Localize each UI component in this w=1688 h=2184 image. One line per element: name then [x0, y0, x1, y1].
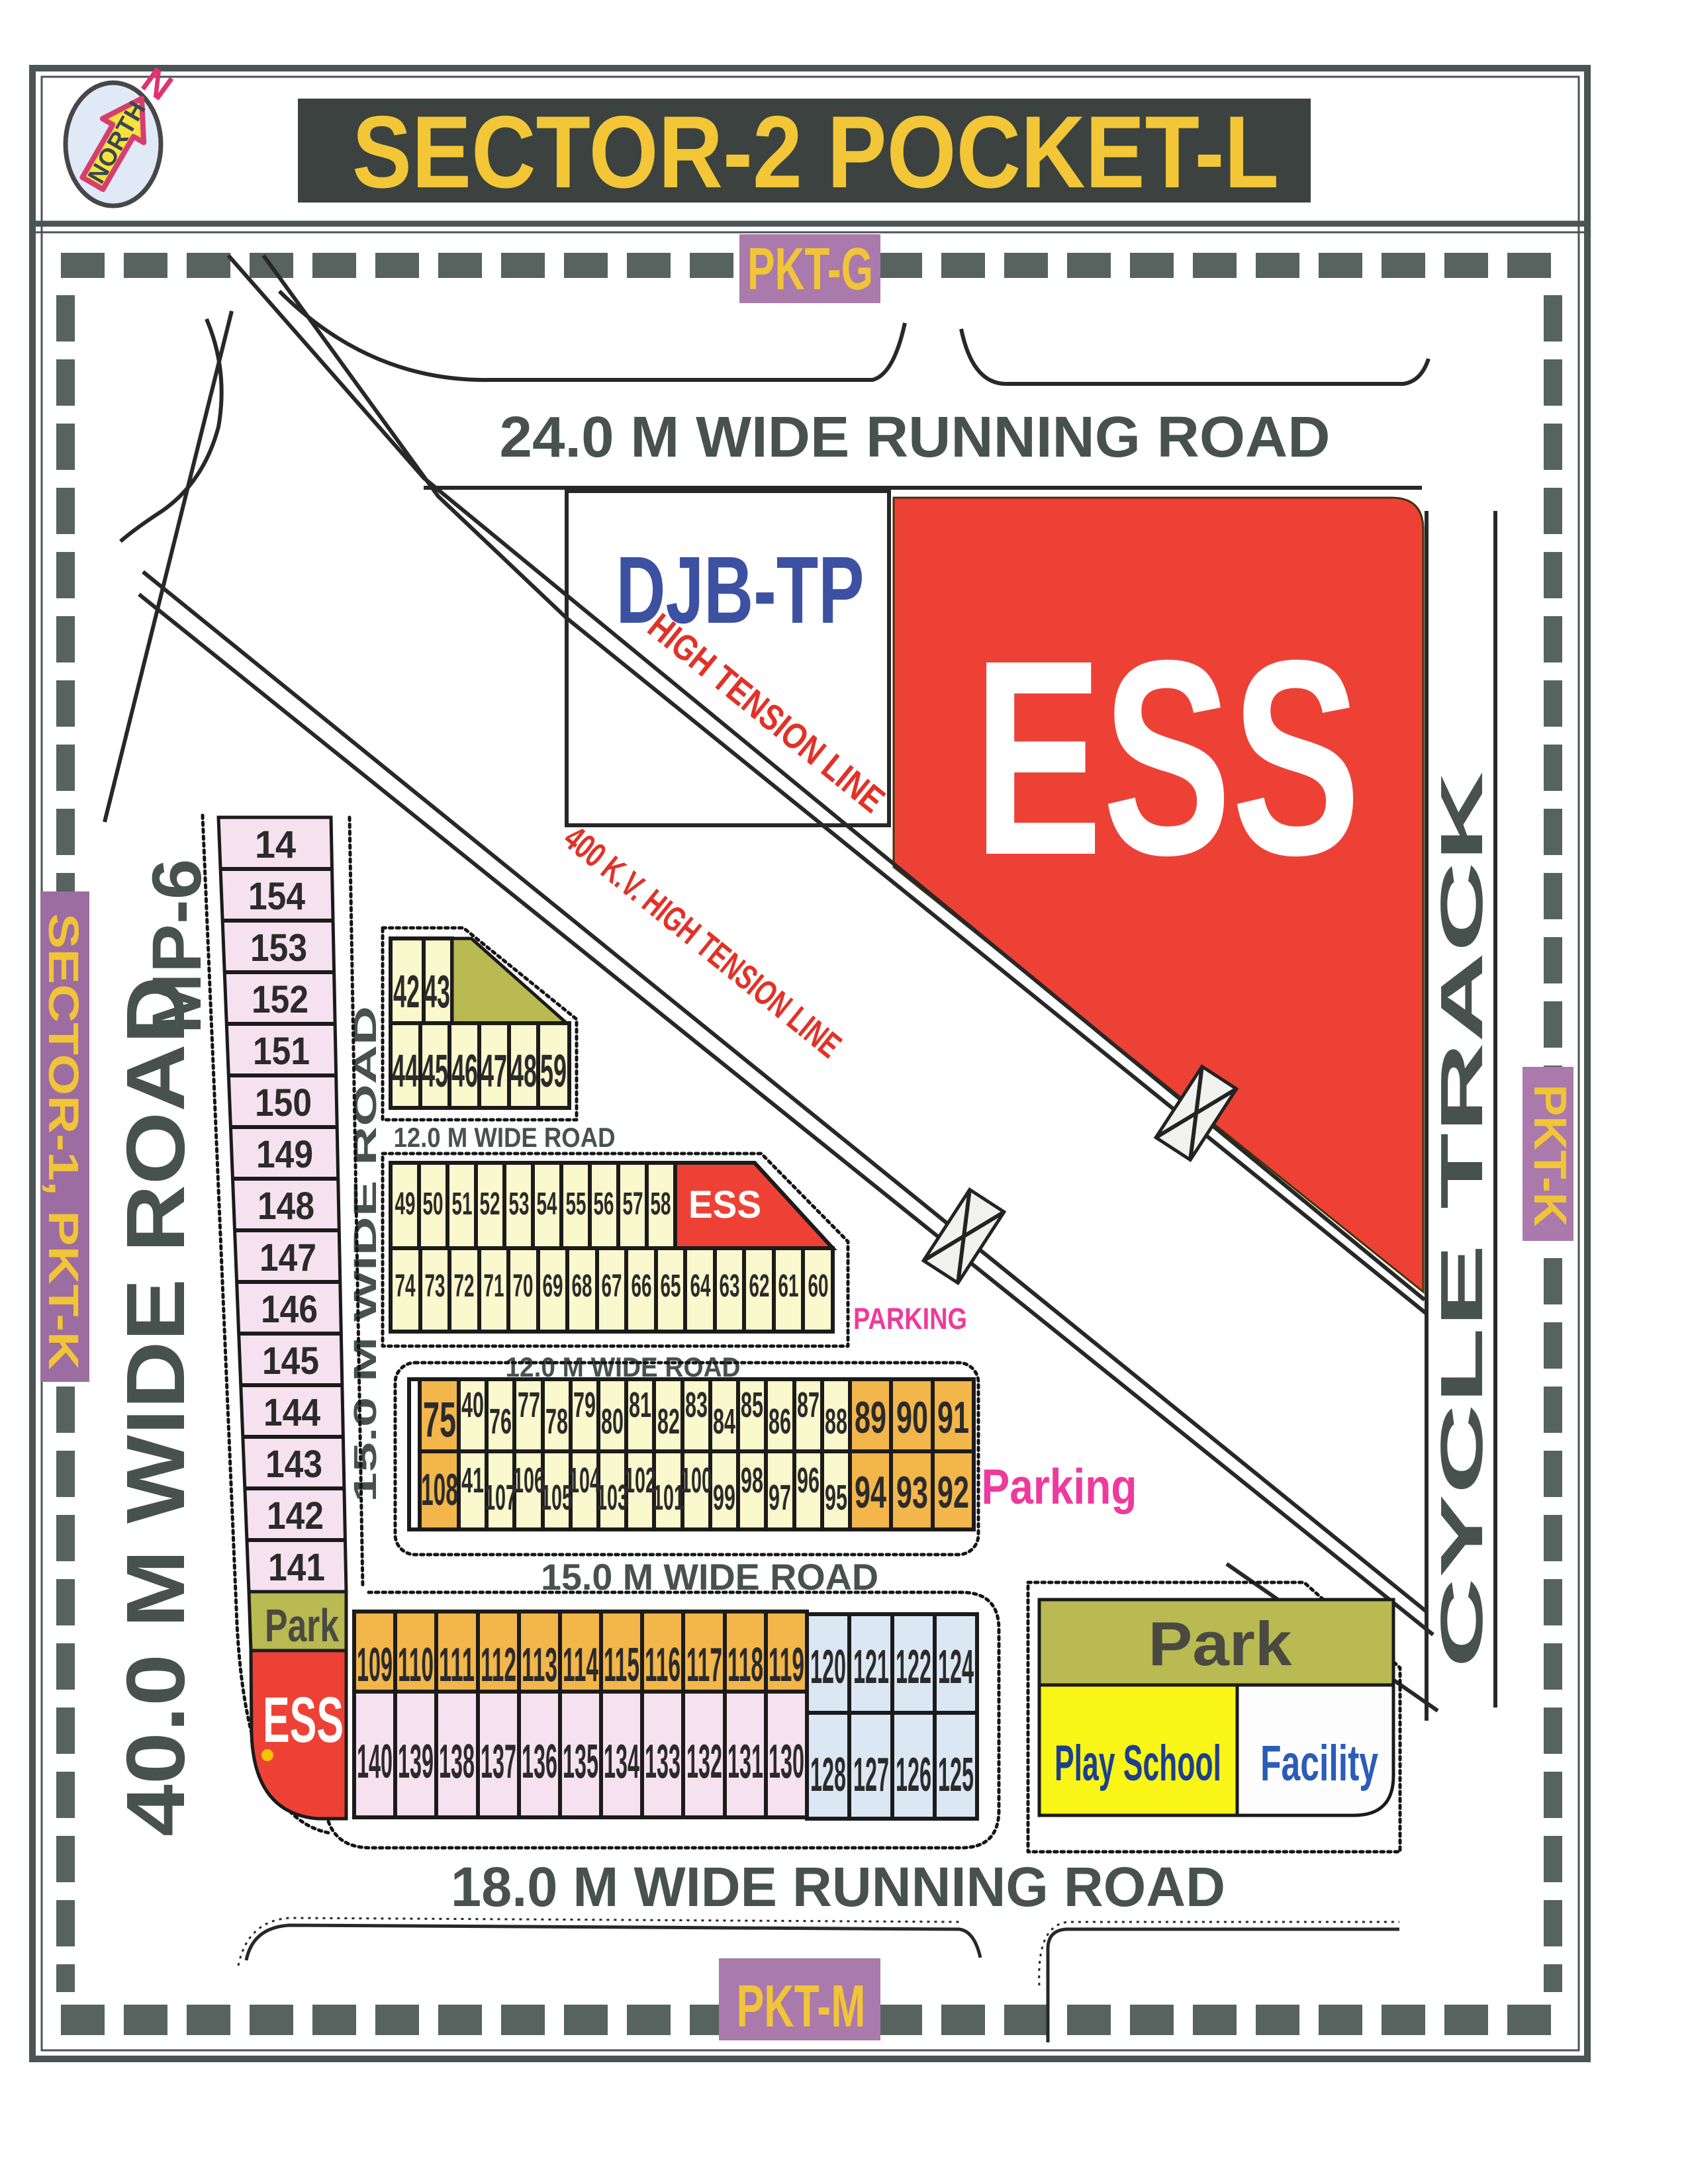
svg-text:115: 115	[604, 1639, 639, 1692]
svg-text:154: 154	[248, 875, 305, 918]
svg-text:45: 45	[422, 1045, 448, 1097]
svg-text:127: 127	[853, 1749, 889, 1801]
svg-text:145: 145	[262, 1340, 319, 1383]
svg-text:Parking: Parking	[982, 1459, 1137, 1514]
svg-text:130: 130	[769, 1735, 804, 1788]
svg-text:142: 142	[267, 1494, 324, 1537]
svg-text:47: 47	[481, 1045, 507, 1097]
svg-text:84: 84	[713, 1402, 735, 1441]
svg-text:67: 67	[602, 1269, 622, 1304]
svg-text:74: 74	[395, 1269, 416, 1304]
svg-text:151: 151	[253, 1030, 310, 1073]
svg-text:60: 60	[808, 1269, 829, 1304]
svg-text:PKT-G: PKT-G	[747, 236, 873, 302]
svg-text:18.0 M WIDE RUNNING ROAD: 18.0 M WIDE RUNNING ROAD	[451, 1856, 1225, 1918]
svg-text:43: 43	[424, 966, 450, 1017]
svg-text:58: 58	[651, 1187, 671, 1222]
svg-text:91: 91	[937, 1392, 969, 1443]
svg-text:140: 140	[357, 1735, 393, 1788]
svg-text:111: 111	[439, 1639, 475, 1692]
svg-text:133: 133	[645, 1735, 680, 1788]
svg-text:52: 52	[480, 1187, 500, 1222]
svg-text:95: 95	[825, 1478, 847, 1518]
svg-text:126: 126	[896, 1749, 931, 1801]
svg-text:89: 89	[855, 1392, 886, 1443]
svg-text:100: 100	[680, 1461, 712, 1500]
svg-text:68: 68	[572, 1269, 592, 1304]
svg-text:50: 50	[423, 1187, 444, 1222]
svg-text:122: 122	[896, 1641, 931, 1694]
svg-text:65: 65	[661, 1269, 681, 1304]
svg-text:94: 94	[855, 1467, 886, 1518]
svg-text:85: 85	[741, 1385, 763, 1425]
svg-text:112: 112	[481, 1639, 516, 1692]
svg-text:83: 83	[685, 1385, 708, 1425]
svg-text:141: 141	[268, 1546, 325, 1589]
svg-text:77: 77	[518, 1385, 540, 1425]
svg-text:62: 62	[749, 1269, 770, 1304]
svg-text:57: 57	[623, 1187, 643, 1222]
svg-text:143: 143	[265, 1443, 322, 1486]
svg-text:119: 119	[769, 1639, 804, 1692]
svg-text:152: 152	[252, 978, 308, 1021]
svg-text:Park: Park	[265, 1600, 339, 1651]
svg-text:98: 98	[741, 1461, 763, 1500]
svg-text:102: 102	[624, 1461, 656, 1500]
svg-text:137: 137	[481, 1735, 516, 1788]
svg-text:139: 139	[398, 1735, 434, 1788]
svg-text:59: 59	[540, 1045, 567, 1097]
svg-text:CYCLE TRACK: CYCLE TRACK	[1429, 772, 1495, 1668]
svg-text:146: 146	[261, 1288, 318, 1331]
svg-text:149: 149	[256, 1133, 313, 1176]
svg-text:90: 90	[896, 1392, 928, 1443]
svg-text:44: 44	[392, 1045, 418, 1097]
svg-text:87: 87	[797, 1385, 820, 1425]
svg-text:88: 88	[825, 1402, 847, 1441]
svg-text:105: 105	[541, 1478, 573, 1518]
svg-text:51: 51	[452, 1187, 473, 1222]
svg-text:148: 148	[258, 1185, 314, 1228]
svg-text:113: 113	[522, 1639, 557, 1692]
svg-text:12.0 M WIDE ROAD: 12.0 M WIDE ROAD	[394, 1122, 616, 1153]
svg-text:80: 80	[601, 1402, 624, 1441]
svg-text:103: 103	[596, 1478, 628, 1518]
svg-text:132: 132	[686, 1735, 722, 1788]
svg-text:Play School: Play School	[1055, 1735, 1221, 1792]
svg-text:121: 121	[853, 1641, 889, 1694]
svg-text:101: 101	[653, 1478, 684, 1518]
svg-text:110: 110	[398, 1639, 434, 1692]
svg-text:PARKING: PARKING	[853, 1302, 967, 1336]
svg-text:114: 114	[563, 1639, 598, 1692]
svg-text:79: 79	[573, 1385, 596, 1425]
svg-text:53: 53	[509, 1187, 530, 1222]
svg-text:78: 78	[545, 1402, 568, 1441]
svg-text:14: 14	[255, 823, 296, 866]
svg-text:86: 86	[769, 1402, 791, 1441]
svg-text:153: 153	[250, 927, 307, 970]
svg-text:116: 116	[645, 1639, 680, 1692]
svg-text:92: 92	[937, 1467, 969, 1518]
svg-text:99: 99	[713, 1478, 735, 1518]
svg-text:73: 73	[425, 1269, 445, 1304]
svg-text:63: 63	[720, 1269, 740, 1304]
svg-text:125: 125	[938, 1749, 974, 1801]
svg-text:128: 128	[810, 1749, 846, 1801]
svg-text:72: 72	[454, 1269, 475, 1304]
svg-text:ESS: ESS	[263, 1684, 344, 1756]
svg-text:55: 55	[566, 1187, 586, 1222]
svg-text:Park: Park	[1149, 1609, 1293, 1678]
svg-text:70: 70	[513, 1269, 534, 1304]
svg-text:61: 61	[778, 1269, 799, 1304]
svg-text:109: 109	[357, 1639, 393, 1692]
svg-text:117: 117	[686, 1639, 722, 1692]
svg-text:PKT-K: PKT-K	[1524, 1085, 1576, 1227]
svg-text:40: 40	[461, 1385, 484, 1425]
svg-text:48: 48	[510, 1045, 537, 1097]
svg-text:81: 81	[629, 1385, 651, 1425]
svg-text:106: 106	[513, 1461, 545, 1500]
svg-text:124: 124	[938, 1641, 974, 1694]
svg-text:Facility: Facility	[1260, 1735, 1378, 1792]
svg-text:41: 41	[461, 1461, 484, 1500]
svg-text:97: 97	[769, 1478, 791, 1518]
svg-text:46: 46	[451, 1045, 478, 1097]
svg-text:SECTOR-2 POCKET-L: SECTOR-2 POCKET-L	[352, 95, 1279, 209]
svg-text:ESS: ESS	[688, 1183, 761, 1226]
svg-text:64: 64	[690, 1269, 711, 1304]
svg-text:135: 135	[563, 1735, 598, 1788]
svg-text:24.0 M WIDE RUNNING ROAD: 24.0 M WIDE RUNNING ROAD	[500, 405, 1331, 469]
svg-text:ESS: ESS	[974, 603, 1361, 913]
svg-text:144: 144	[263, 1391, 320, 1434]
svg-text:150: 150	[255, 1081, 312, 1124]
svg-text:49: 49	[395, 1187, 416, 1222]
svg-text:SECTOR-1, PKT-K: SECTOR-1, PKT-K	[40, 913, 87, 1370]
svg-text:66: 66	[632, 1269, 652, 1304]
svg-text:118: 118	[727, 1639, 763, 1692]
svg-text:134: 134	[604, 1735, 639, 1788]
svg-text:54: 54	[537, 1187, 557, 1222]
svg-text:82: 82	[657, 1402, 680, 1441]
svg-text:96: 96	[797, 1461, 820, 1500]
svg-text:104: 104	[569, 1461, 600, 1500]
svg-text:93: 93	[896, 1467, 928, 1518]
svg-text:138: 138	[439, 1735, 475, 1788]
svg-text:PKT-M: PKT-M	[737, 1974, 866, 2040]
svg-text:131: 131	[727, 1735, 763, 1788]
svg-text:40.0 M WIDE ROAD: 40.0 M WIDE ROAD	[110, 976, 202, 1837]
svg-text:69: 69	[543, 1269, 563, 1304]
svg-text:107: 107	[485, 1478, 516, 1518]
svg-text:76: 76	[489, 1402, 512, 1441]
svg-text:147: 147	[259, 1236, 316, 1279]
svg-text:75: 75	[423, 1392, 456, 1447]
svg-text:120: 120	[810, 1641, 846, 1694]
svg-text:42: 42	[393, 966, 420, 1017]
svg-text:56: 56	[594, 1187, 614, 1222]
svg-text:136: 136	[522, 1735, 557, 1788]
svg-text:108: 108	[421, 1465, 458, 1515]
svg-text:71: 71	[484, 1269, 504, 1304]
